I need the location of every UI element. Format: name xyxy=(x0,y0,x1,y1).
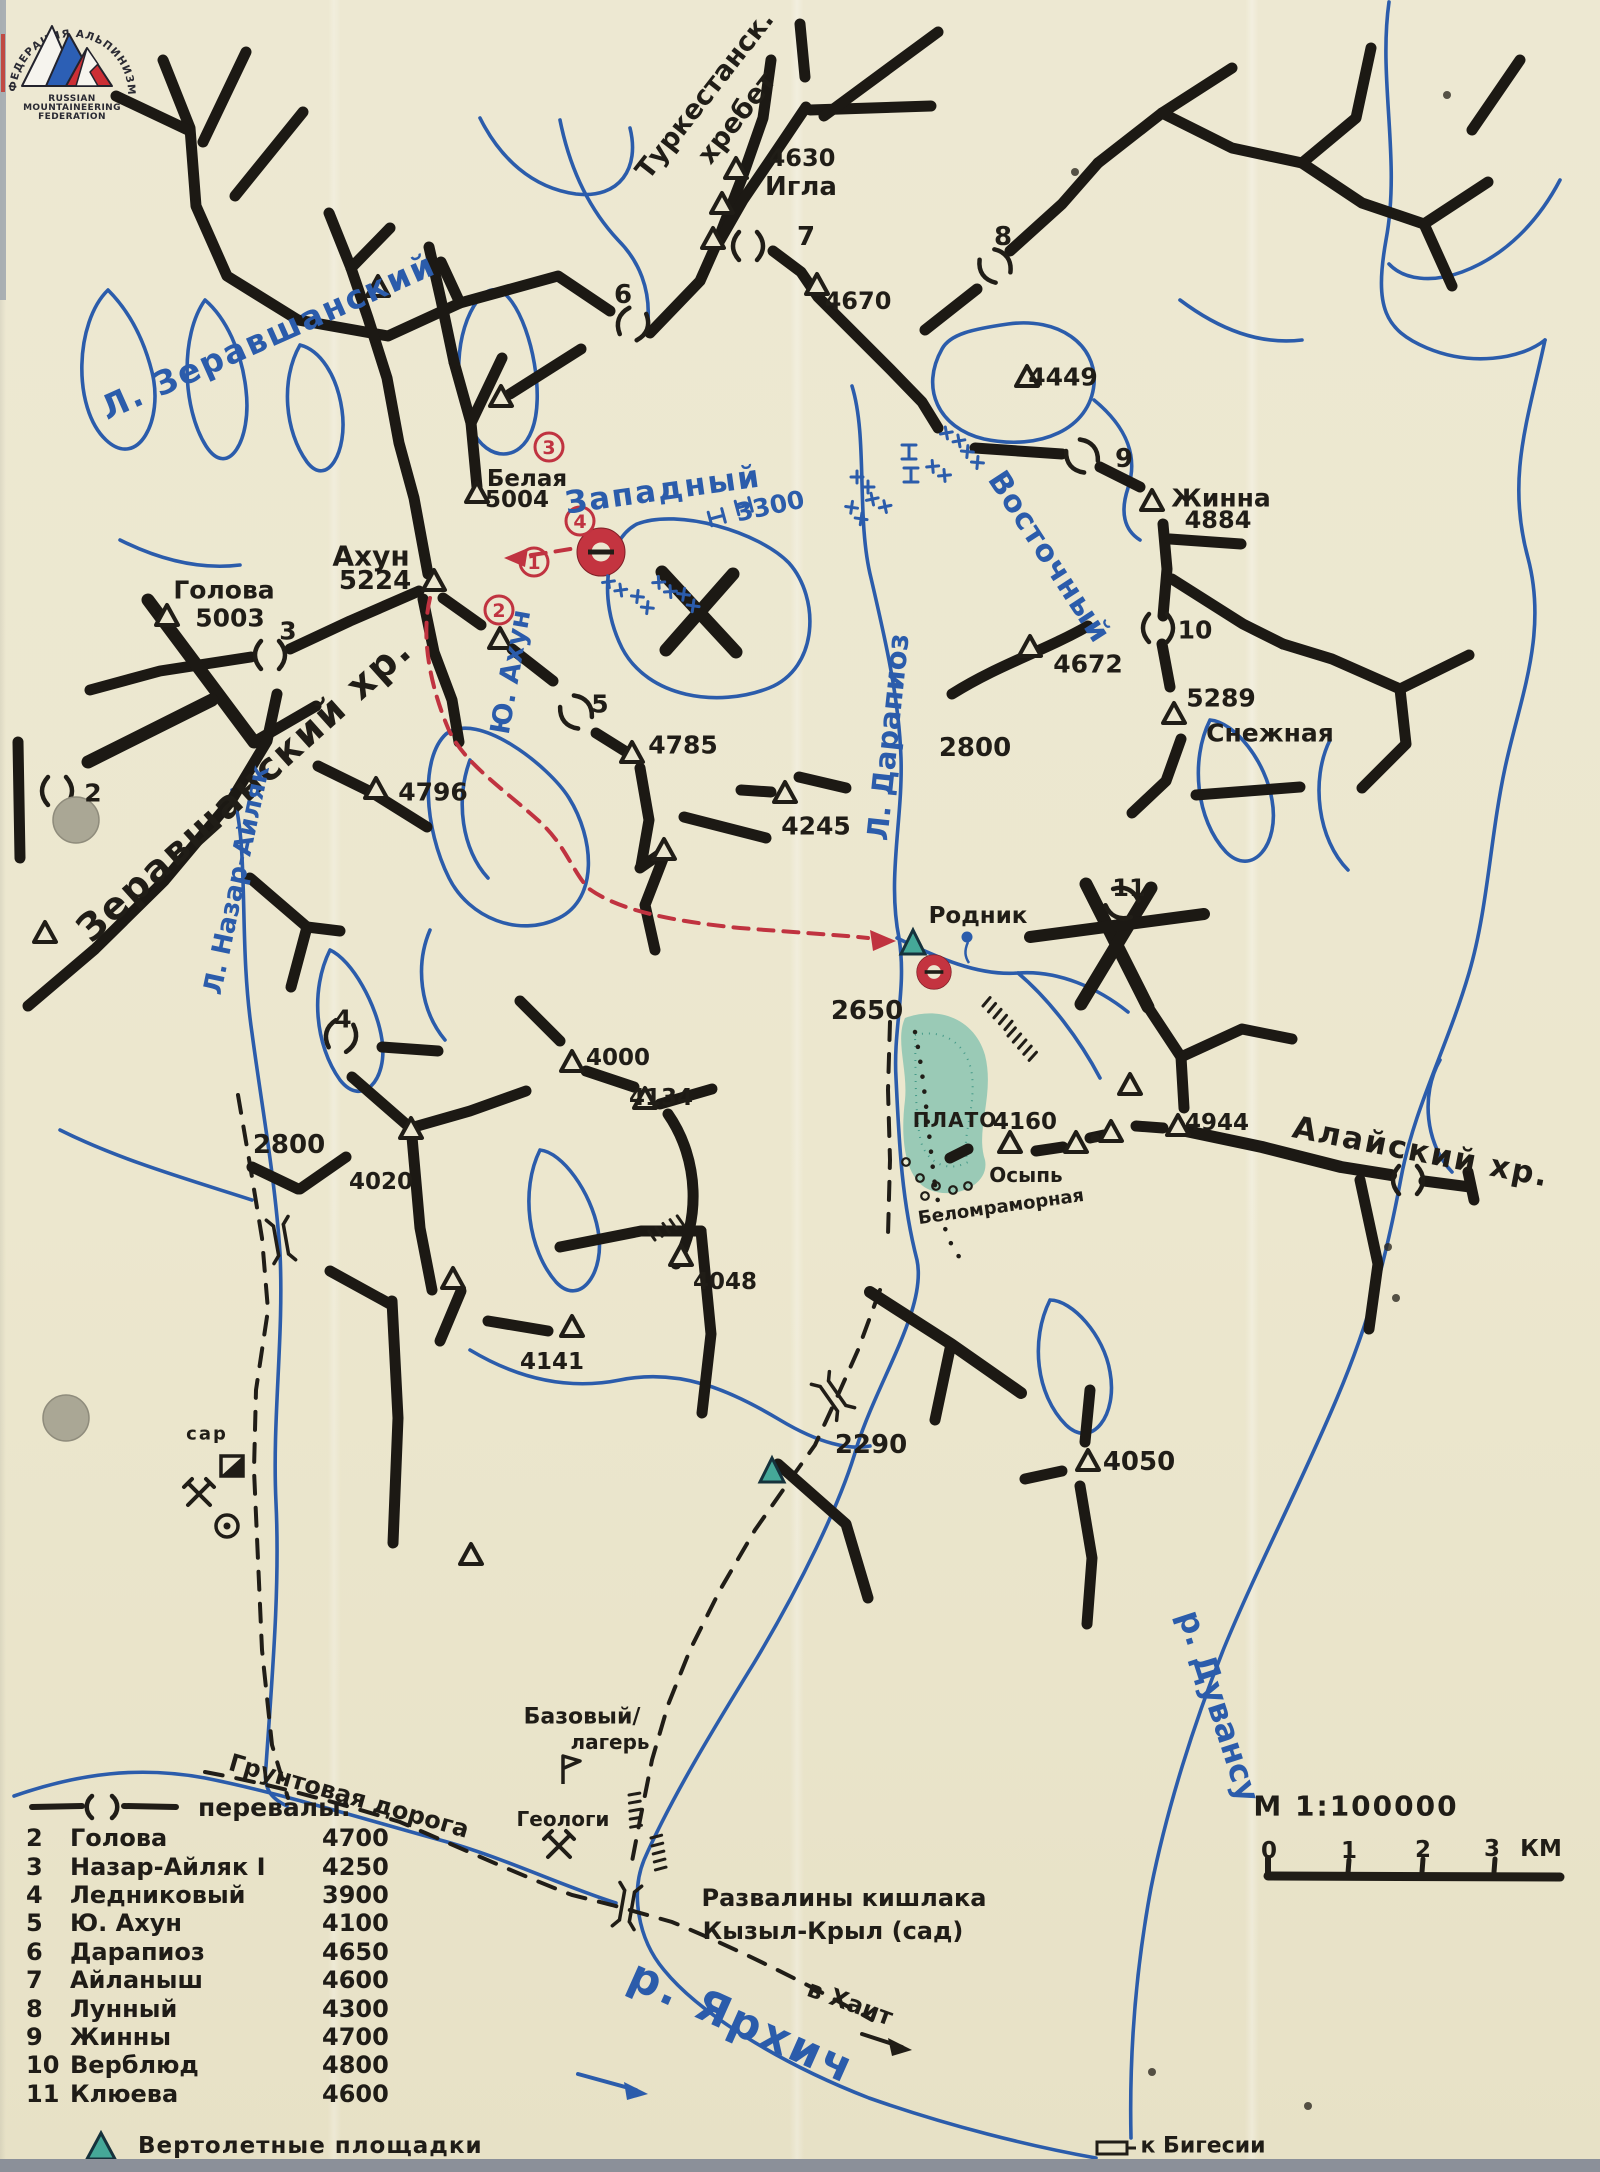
legend-item-name: Клюева xyxy=(70,2080,322,2108)
map-label: 2800 xyxy=(939,733,1011,763)
legend-item: 3Назар-Айляк I4250 xyxy=(26,1852,496,1880)
legend-item-number: 7 xyxy=(26,1966,70,1994)
scan-edge-bottom xyxy=(0,2159,1600,2172)
peak-icon xyxy=(442,1268,464,1288)
helipad-icon xyxy=(84,2130,118,2162)
crossed-hammers-icon xyxy=(544,1831,574,1857)
spring-icon xyxy=(962,932,973,964)
legend-item-altitude: 4100 xyxy=(322,1909,389,1937)
crevasse-icon xyxy=(843,501,869,526)
ridge-dot xyxy=(1091,1134,1100,1143)
map-label: 3 xyxy=(1484,1836,1500,1862)
map-label: 4 xyxy=(334,1005,351,1034)
pass-icon xyxy=(1393,1166,1423,1194)
glacier-gate-icon xyxy=(708,509,725,526)
svg-text:3: 3 xyxy=(542,437,555,459)
map-label: 4884 xyxy=(1185,506,1252,534)
camp-target-icon xyxy=(917,955,952,990)
ink-speck xyxy=(1148,2068,1156,2076)
map-label: 4048 xyxy=(693,1269,757,1295)
map-label: сар xyxy=(186,1424,228,1445)
peak-icon xyxy=(1100,1121,1122,1141)
map-label: Осыпь xyxy=(989,1163,1062,1187)
map-label: 11 xyxy=(1112,874,1145,902)
crevasse-icon xyxy=(602,573,628,598)
pass-symbol-icon xyxy=(26,1793,184,1821)
ink-speck xyxy=(1384,1243,1392,1251)
map-label: 10 xyxy=(1178,616,1213,645)
map-label: Базовый/ xyxy=(524,1705,641,1730)
peak-icon xyxy=(460,1544,482,1564)
legend-item: 5Ю. Ахун4100 xyxy=(26,1909,496,1937)
map-label: 4944 xyxy=(1185,1110,1249,1136)
map-label: 4449 xyxy=(1028,363,1098,392)
slope-hachure-icon xyxy=(980,998,1014,1030)
ink-speck xyxy=(1304,2102,1312,2110)
ink-speck xyxy=(1071,168,1079,176)
crevasse-icon xyxy=(926,459,951,483)
circle-dot-icon xyxy=(216,1515,238,1537)
map-label: 4134 xyxy=(629,1085,693,1111)
legend-item: 11Клюева4600 xyxy=(26,2080,496,2108)
scree-dot xyxy=(921,1192,929,1200)
legend-item: 8Лунный4300 xyxy=(26,1994,496,2022)
glacier-gate-icon xyxy=(904,468,918,482)
map-label: Родник xyxy=(929,903,1028,929)
legend-item: 9Жинны4700 xyxy=(26,2023,496,2051)
map-label: Развалины кишлака xyxy=(702,1884,987,1912)
map-label: к Бигесии xyxy=(1140,2134,1265,2159)
map-label: 4000 xyxy=(586,1045,650,1071)
peak-icon xyxy=(774,782,796,802)
legend-item-number: 10 xyxy=(26,2051,70,2079)
federation-logo: ФЕДЕРАЦИЯ АЛЬПИНИЗМА РОССИИ RUSSIAN MOUN… xyxy=(6,6,138,124)
map-label: 0 xyxy=(1261,1838,1277,1864)
flag-icon xyxy=(563,1756,580,1784)
legend-item-number: 3 xyxy=(26,1853,70,1881)
legend-item-name: Жинны xyxy=(70,2023,322,2051)
legend-item-altitude: 3900 xyxy=(322,1881,389,1909)
ink-speck xyxy=(1443,91,1451,99)
map-label: Голова xyxy=(173,576,274,605)
peak-icon xyxy=(561,1051,583,1071)
legend-item-name: Лунный xyxy=(70,1995,322,2023)
legend-item: 7Айланыш4600 xyxy=(26,1966,496,1994)
map-label: 4050 xyxy=(1103,1447,1175,1477)
legend-item-number: 4 xyxy=(26,1881,70,1909)
map-label: 2290 xyxy=(835,1430,907,1460)
slope-hachure-icon xyxy=(1005,1028,1039,1061)
map-label: 4020 xyxy=(349,1169,413,1195)
legend-item-altitude: 4250 xyxy=(322,1853,389,1881)
peak-icon xyxy=(1077,1450,1099,1470)
legend-item-altitude: 4300 xyxy=(322,1995,389,2023)
legend-item-name: Дарапиоз xyxy=(70,1938,322,1966)
legend-item: 4Ледниковый3900 xyxy=(26,1881,496,1909)
legend-rows: 2Голова47003Назар-Айляк I42504Ледниковый… xyxy=(26,1824,496,2108)
legend-item: 2Голова4700 xyxy=(26,1824,496,1852)
legend-item-number: 9 xyxy=(26,2023,70,2051)
map-label: 4160 xyxy=(993,1109,1057,1135)
pass-icon xyxy=(733,232,763,260)
map-label: 4670 xyxy=(825,287,892,315)
map-label: 4785 xyxy=(648,731,718,760)
peak-icon xyxy=(34,922,56,942)
map-label: 1 xyxy=(1341,1838,1357,1864)
legend-item: 10Верблюд4800 xyxy=(26,2051,496,2079)
legend-item-name: Ю. Ахун xyxy=(70,1909,322,1937)
legend-item-number: 8 xyxy=(26,1995,70,2023)
peak-icon xyxy=(1163,703,1185,723)
legend-item-altitude: 4600 xyxy=(322,2080,389,2108)
legend-item-number: 5 xyxy=(26,1909,70,1937)
legend-heli: Вертолетные площадки xyxy=(84,2130,483,2162)
logo-line-3: FEDERATION xyxy=(6,112,138,122)
map-label: 5289 xyxy=(1186,684,1256,713)
legend-item-number: 11 xyxy=(26,2080,70,2108)
peak-icon xyxy=(365,778,387,798)
map-label: КМ xyxy=(1520,1836,1562,1862)
legend: перевалы: 2Голова47003Назар-Айляк I42504… xyxy=(26,1790,496,2108)
legend-item-altitude: 4600 xyxy=(322,1966,389,1994)
map-label: 5003 xyxy=(195,604,265,633)
map-label: Геологи xyxy=(517,1807,610,1831)
map-label: 4141 xyxy=(520,1349,584,1375)
ink-speck xyxy=(1392,1294,1400,1302)
map-label: ПЛАТО xyxy=(913,1108,997,1132)
hut-icon xyxy=(221,1456,243,1476)
bridge-icon xyxy=(811,1372,854,1421)
peak-icon xyxy=(1019,636,1041,656)
map-label: Снежная xyxy=(1206,719,1334,748)
legend-item-name: Верблюд xyxy=(70,2051,322,2079)
map-label: 2800 xyxy=(253,1130,325,1160)
map-label: лагерь xyxy=(570,1730,649,1754)
map-label: 2 xyxy=(84,779,101,808)
map-label: 9 xyxy=(1115,444,1133,474)
legend-item-number: 6 xyxy=(26,1938,70,1966)
legend-item: 6Дарапиоз4650 xyxy=(26,1938,496,1966)
map-label: 5224 xyxy=(339,566,411,596)
map-label: 4245 xyxy=(781,812,851,841)
legend-item-name: Голова xyxy=(70,1824,322,1852)
slope-hachure-icon xyxy=(647,1835,670,1870)
map-label: 6 xyxy=(614,280,632,310)
legend-item-number: 2 xyxy=(26,1824,70,1852)
map-label: 4630 xyxy=(769,144,836,172)
peak-icon xyxy=(1119,1074,1141,1094)
peak-icon xyxy=(1141,490,1163,510)
village-rect-icon xyxy=(1097,2142,1136,2154)
map-label: Кызыл-Крыл (сад) xyxy=(703,1917,964,1945)
map-label: 2 xyxy=(1415,1837,1431,1863)
legend-item-altitude: 4650 xyxy=(322,1938,389,1966)
svg-text:1: 1 xyxy=(527,552,540,574)
map-label: Игла xyxy=(765,172,837,202)
legend-passes-header: перевалы: xyxy=(26,1790,496,1824)
punch-hole xyxy=(43,1395,89,1441)
map-label: 7 xyxy=(797,222,815,252)
crevasse-icon xyxy=(630,590,655,614)
map-label: 4672 xyxy=(1053,650,1123,679)
route-point: 3 xyxy=(535,433,563,461)
map-label: 5004 xyxy=(485,487,549,513)
legend-item-name: Айланыш xyxy=(70,1966,322,1994)
map-label: 4796 xyxy=(398,778,468,807)
legend-passes-label: перевалы: xyxy=(198,1793,351,1822)
legend-item-altitude: 4700 xyxy=(322,1824,389,1852)
map-label: 8 xyxy=(994,222,1012,252)
crossed-hammers-icon xyxy=(184,1479,214,1505)
legend-item-altitude: 4700 xyxy=(322,2023,389,2051)
peak-icon xyxy=(1065,1132,1087,1152)
map-label: 3 xyxy=(279,617,296,646)
map-label: М 1:100000 xyxy=(1253,1790,1458,1823)
legend-item-altitude: 4800 xyxy=(322,2051,389,2079)
map-label: 5 xyxy=(591,690,608,719)
peak-icon xyxy=(653,839,675,859)
peak-icon xyxy=(999,1132,1021,1152)
legend-item-name: Ледниковый xyxy=(70,1881,322,1909)
map-label: 2650 xyxy=(831,996,903,1026)
legend-heli-label: Вертолетные площадки xyxy=(138,2133,483,2159)
plateau-area xyxy=(901,1013,988,1193)
peak-icon xyxy=(561,1316,583,1336)
glacier-gate-icon xyxy=(902,445,916,459)
legend-item-name: Назар-Айляк I xyxy=(70,1853,322,1881)
